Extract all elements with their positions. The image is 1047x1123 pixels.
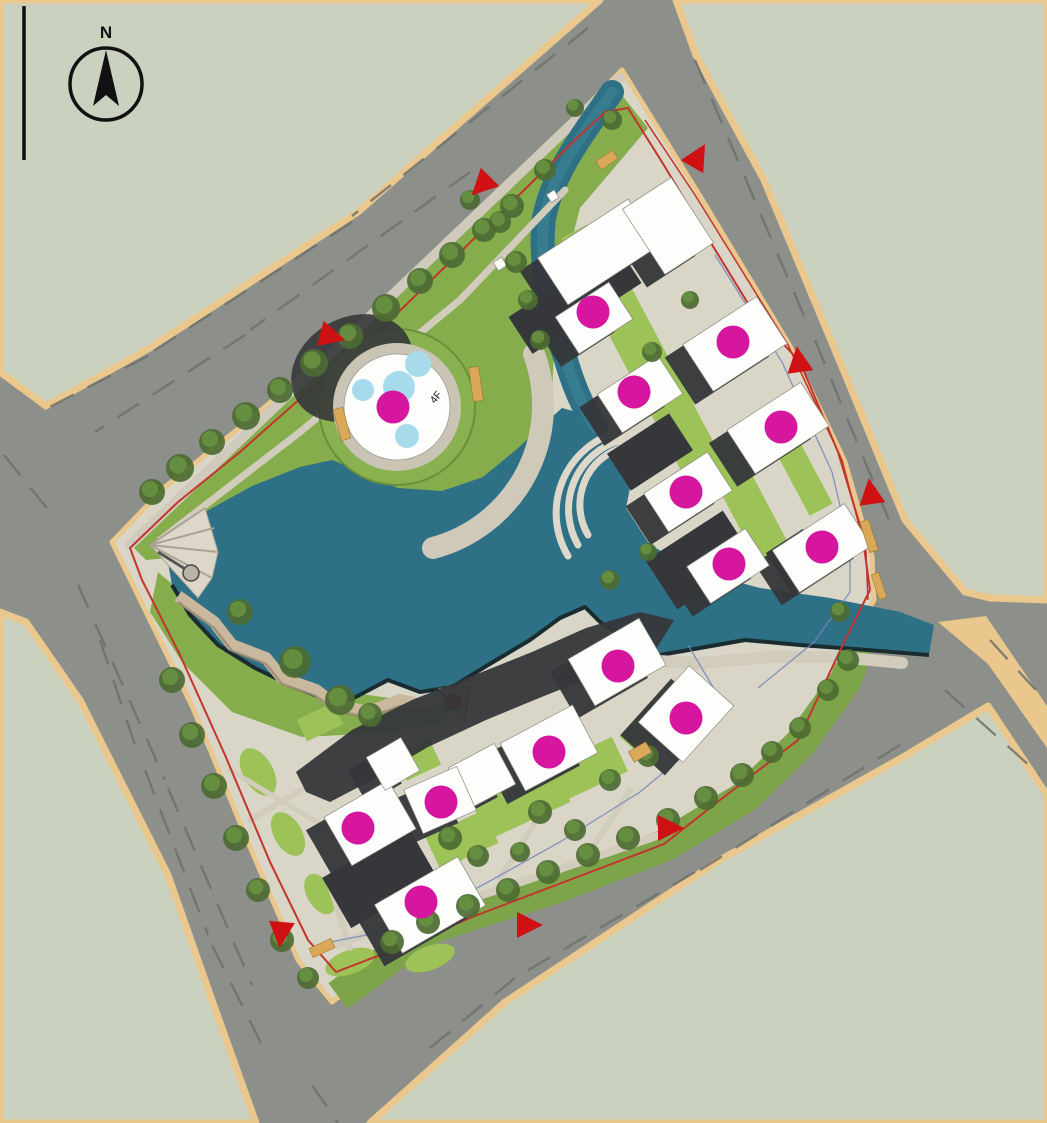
tree-canopy	[383, 932, 398, 947]
tree-canopy	[270, 379, 286, 395]
unit-marker-dot	[670, 476, 703, 509]
tree-canopy	[604, 111, 616, 123]
tree-canopy	[469, 846, 483, 860]
tree-canopy	[162, 669, 178, 685]
unit-marker-dot	[377, 391, 410, 424]
site-plan: 4F N	[0, 0, 1047, 1123]
tree-canopy	[697, 788, 712, 803]
plaza-pool	[352, 379, 374, 401]
unit-marker-dot	[405, 886, 438, 919]
tree-canopy	[602, 571, 614, 583]
tree-canopy	[299, 968, 313, 982]
plaza-pool	[395, 424, 419, 448]
tree-canopy	[567, 99, 578, 110]
tree-canopy	[303, 351, 320, 368]
tree-canopy	[532, 331, 544, 343]
unit-marker-dot	[577, 296, 610, 329]
tree-canopy	[536, 160, 550, 174]
unit-marker-dot	[806, 531, 839, 564]
unit-marker-dot	[717, 326, 750, 359]
unit-marker-dot	[618, 376, 651, 409]
tree-canopy	[539, 862, 554, 877]
tree-canopy	[832, 603, 844, 615]
tree-canopy	[442, 244, 458, 260]
tree-canopy	[375, 296, 392, 313]
unit-marker-dot	[342, 812, 375, 845]
tree-canopy	[579, 845, 594, 860]
tree-canopy	[230, 601, 246, 617]
tree-canopy	[182, 724, 198, 740]
tree-canopy	[235, 404, 252, 421]
tree-canopy	[249, 880, 264, 895]
tree-canopy	[499, 880, 514, 895]
unit-marker-dot	[670, 702, 703, 735]
tree-canopy	[226, 827, 242, 843]
tree-canopy	[283, 649, 303, 669]
tree-canopy	[763, 742, 777, 756]
site-plan-svg: 4F N	[0, 0, 1047, 1123]
tree-canopy	[512, 843, 524, 855]
tree-canopy	[531, 802, 546, 817]
tree-canopy	[640, 543, 651, 554]
tree-canopy	[441, 828, 456, 843]
tree-canopy	[791, 718, 805, 732]
tree-canopy	[475, 220, 490, 235]
tree-canopy	[682, 291, 693, 302]
tree-canopy	[619, 828, 634, 843]
tree-canopy	[601, 770, 615, 784]
unit-marker-dot	[533, 736, 566, 769]
tree-canopy	[329, 688, 348, 707]
tree-canopy	[361, 705, 376, 720]
tree-canopy	[566, 820, 580, 834]
compass-label: N	[100, 23, 112, 42]
tree-canopy	[839, 650, 853, 664]
tree-canopy	[202, 431, 218, 447]
unit-marker-dot	[425, 786, 458, 819]
unit-marker-dot	[602, 650, 635, 683]
lake-pavilion	[183, 565, 199, 581]
tree-canopy	[459, 896, 474, 911]
tree-canopy	[142, 481, 158, 497]
unit-marker-dot	[713, 548, 746, 581]
tree-canopy	[507, 252, 521, 266]
tree-canopy	[169, 456, 186, 473]
unit-marker-dot	[765, 411, 798, 444]
tree-canopy	[410, 270, 426, 286]
tree-canopy	[503, 196, 518, 211]
tree-canopy	[462, 191, 474, 203]
tree-canopy	[819, 680, 833, 694]
tree-canopy	[204, 775, 220, 791]
plaza-pool	[405, 351, 431, 377]
tree-canopy	[644, 343, 656, 355]
tree-canopy	[733, 765, 748, 780]
tree-canopy	[491, 212, 505, 226]
tree-canopy	[520, 291, 532, 303]
